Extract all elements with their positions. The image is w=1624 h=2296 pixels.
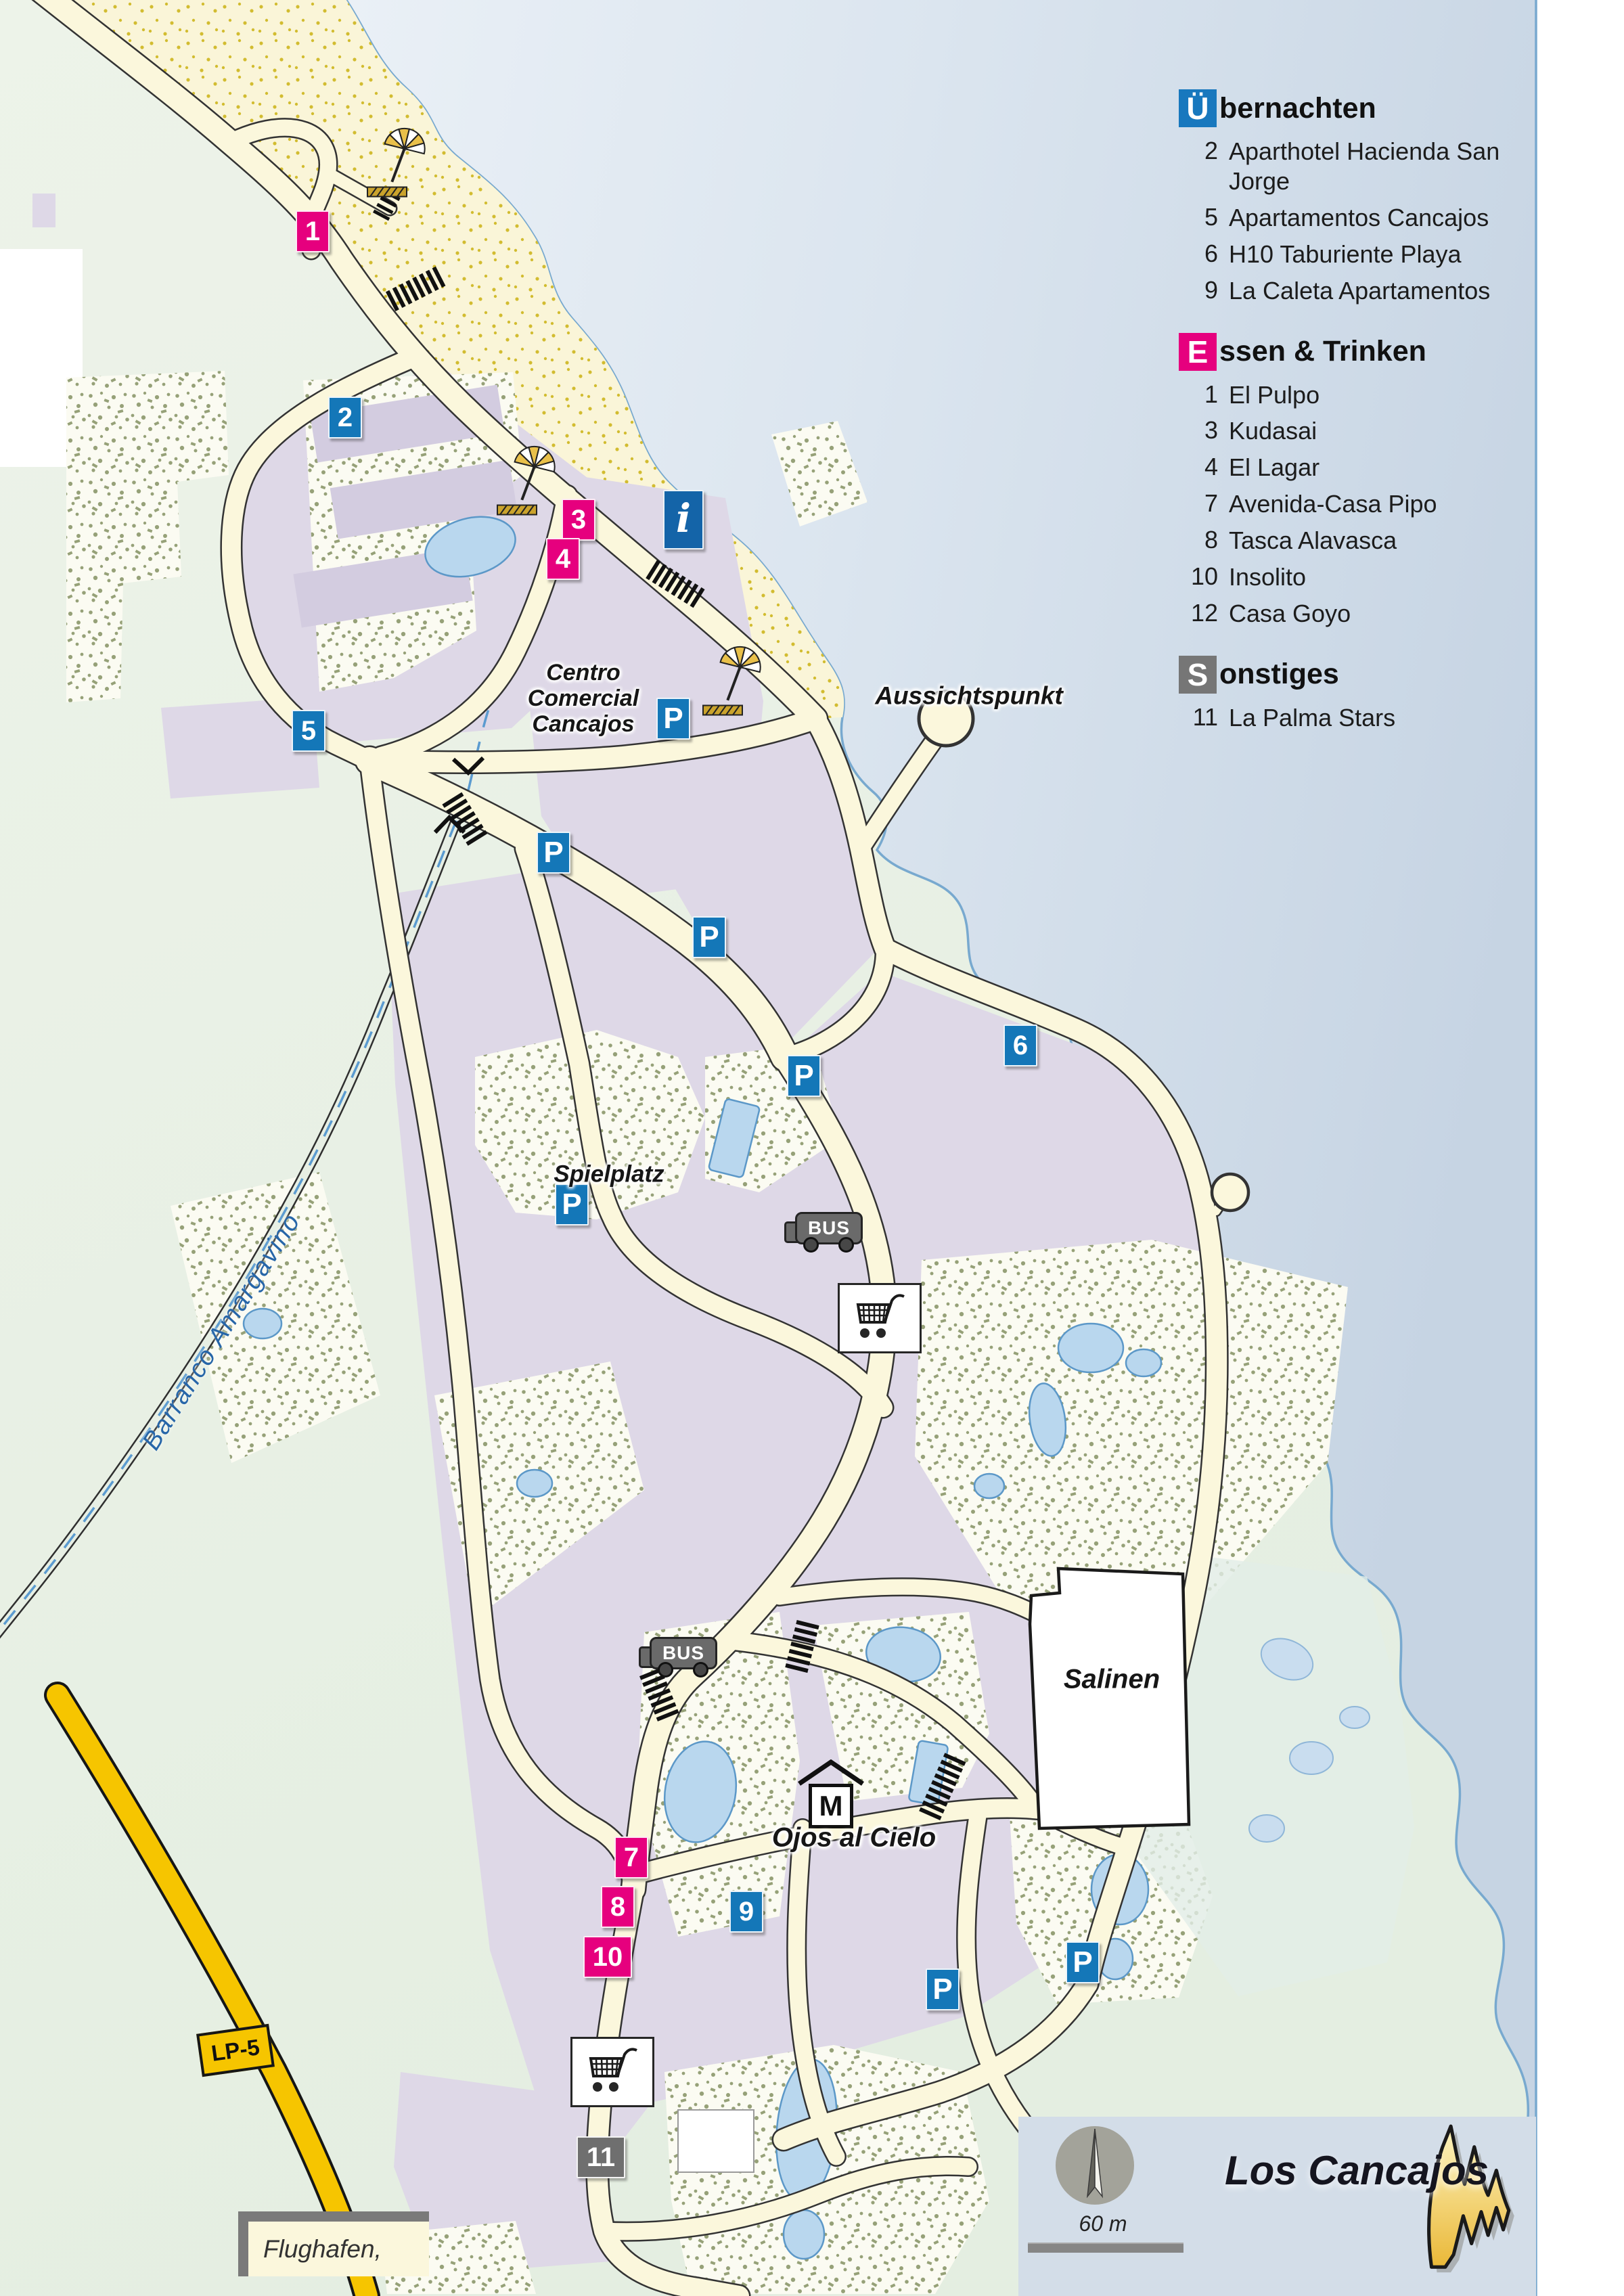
legend-item-8: 8Tasca Alavasca bbox=[1179, 526, 1544, 556]
legend-title-uebernachten: bernachten bbox=[1219, 92, 1376, 125]
legend-item-7: 7Avenida-Casa Pipo bbox=[1179, 489, 1544, 519]
legend-category-icon-uebernachten: Ü bbox=[1179, 89, 1217, 127]
legend-item-label: Apartamentos Cancajos bbox=[1229, 203, 1489, 233]
legend-item-number: 4 bbox=[1179, 453, 1218, 482]
legend-title-sonstiges: onstiges bbox=[1219, 658, 1339, 691]
map-marker-5[interactable]: 5 bbox=[292, 710, 325, 752]
label-aussichtspunkt: Aussichtspunkt bbox=[875, 681, 1063, 709]
legend-category-icon-sonstiges: S bbox=[1179, 656, 1217, 694]
legend-section-uebernachten: Übernachten2Aparthotel Hacienda San Jorg… bbox=[1179, 89, 1544, 306]
legend-item-number: 6 bbox=[1179, 240, 1218, 269]
label-spielplatz: Spielplatz bbox=[554, 1161, 664, 1187]
parking-marker-5[interactable]: P bbox=[555, 1184, 589, 1225]
legend-item-9: 9La Caleta Apartamentos bbox=[1179, 276, 1544, 306]
beach-parasol-icon-3 bbox=[691, 646, 792, 724]
museum-roof bbox=[794, 1759, 868, 1786]
bus-wheel bbox=[658, 1662, 673, 1678]
map-page: 123456789101112PPPPPPPiBUSBUSMCentroCome… bbox=[0, 0, 1624, 2296]
legend-item-number: 8 bbox=[1179, 526, 1218, 556]
legend-item-label: Avenida-Casa Pipo bbox=[1229, 489, 1437, 519]
map-marker-6[interactable]: 6 bbox=[1003, 1025, 1037, 1066]
legend-section-essen-trinken: Essen & Trinken1El Pulpo3Kudasai4El Laga… bbox=[1179, 333, 1544, 629]
legend-section-sonstiges: Sonstiges11La Palma Stars bbox=[1179, 656, 1544, 733]
legend-item-number: 3 bbox=[1179, 416, 1218, 446]
legend-item-number: 7 bbox=[1179, 489, 1218, 519]
legend-item-2: 2Aparthotel Hacienda San Jorge bbox=[1179, 137, 1544, 196]
title-panel: Los Cancajos 60 m bbox=[1018, 2117, 1536, 2296]
legend-heading-essen-trinken: Essen & Trinken bbox=[1179, 333, 1544, 371]
legend-item-6: 6H10 Taburiente Playa bbox=[1179, 240, 1544, 269]
map-marker-11[interactable]: 11 bbox=[577, 2136, 625, 2178]
map-marker-10[interactable]: 10 bbox=[583, 1936, 632, 1978]
legend-item-5: 5Apartamentos Cancajos bbox=[1179, 203, 1544, 233]
scale-text: 60 m bbox=[1059, 2211, 1147, 2236]
parking-marker-1[interactable]: P bbox=[656, 698, 690, 740]
label-salinen: Salinen bbox=[1064, 1665, 1160, 1695]
bus-stop-icon-2[interactable]: BUS bbox=[639, 1636, 715, 1678]
legend: Übernachten2Aparthotel Hacienda San Jorg… bbox=[1179, 89, 1544, 760]
label-centro-comercial-cancajos: CentroComercialCancajos bbox=[528, 660, 639, 737]
legend-item-11: 11La Palma Stars bbox=[1179, 703, 1544, 733]
bus-wheel bbox=[838, 1237, 854, 1253]
bus-wheel bbox=[693, 1662, 708, 1678]
map-marker-4[interactable]: 4 bbox=[546, 538, 580, 580]
scale-bar bbox=[1028, 2243, 1183, 2253]
supermarket-icon-2[interactable] bbox=[570, 2037, 654, 2107]
map-marker-2[interactable]: 2 bbox=[328, 397, 362, 438]
supermarket-icon-1[interactable] bbox=[838, 1283, 922, 1353]
road-badge-lp5: LP-5 bbox=[196, 2024, 275, 2077]
map-marker-9[interactable]: 9 bbox=[729, 1891, 763, 1933]
beach-parasol-icon-2 bbox=[485, 446, 587, 524]
parking-marker-6[interactable]: P bbox=[1066, 1941, 1100, 1983]
legend-item-number: 2 bbox=[1179, 137, 1218, 196]
legend-item-1: 1El Pulpo bbox=[1179, 380, 1544, 410]
legend-item-number: 5 bbox=[1179, 203, 1218, 233]
legend-item-number: 9 bbox=[1179, 276, 1218, 306]
legend-item-number: 10 bbox=[1179, 562, 1218, 592]
parking-marker-4[interactable]: P bbox=[787, 1055, 821, 1097]
panel-graphics bbox=[1018, 2117, 1536, 2296]
legend-category-icon-essen-trinken: E bbox=[1179, 333, 1217, 371]
legend-item-label: Tasca Alavasca bbox=[1229, 526, 1397, 556]
information-icon[interactable]: i bbox=[663, 490, 704, 549]
parking-marker-2[interactable]: P bbox=[537, 832, 570, 874]
legend-item-label: La Caleta Apartamentos bbox=[1229, 276, 1490, 306]
legend-heading-uebernachten: Übernachten bbox=[1179, 89, 1544, 127]
map-marker-8[interactable]: 8 bbox=[601, 1886, 635, 1928]
compass-icon bbox=[1056, 2126, 1134, 2205]
map-marker-7[interactable]: 7 bbox=[614, 1837, 648, 1878]
label-barranco-amargavino: Barranco Amargavino bbox=[137, 1208, 307, 1455]
legend-item-4: 4El Lagar bbox=[1179, 453, 1544, 482]
legend-item-3: 3Kudasai bbox=[1179, 416, 1544, 446]
legend-item-10: 10Insolito bbox=[1179, 562, 1544, 592]
beach-parasol-icon-1 bbox=[355, 128, 457, 206]
legend-item-label: El Lagar bbox=[1229, 453, 1319, 482]
bus-wheel bbox=[803, 1237, 819, 1253]
parking-marker-7[interactable]: P bbox=[926, 1968, 960, 2010]
label-ojos-al-cielo: Ojos al Cielo bbox=[772, 1823, 936, 1853]
legend-title-essen-trinken: ssen & Trinken bbox=[1219, 335, 1426, 368]
parking-marker-3[interactable]: P bbox=[692, 916, 726, 958]
legend-item-label: Kudasai bbox=[1229, 416, 1317, 446]
legend-item-label: Casa Goyo bbox=[1229, 599, 1351, 629]
legend-item-label: Insolito bbox=[1229, 562, 1306, 592]
legend-item-label: H10 Taburiente Playa bbox=[1229, 240, 1462, 269]
airport-callout: Flughafen, bbox=[238, 2211, 429, 2276]
museum-letter: M bbox=[809, 1784, 853, 1828]
legend-item-number: 12 bbox=[1179, 599, 1218, 629]
legend-item-label: La Palma Stars bbox=[1229, 703, 1395, 733]
legend-item-number: 1 bbox=[1179, 380, 1218, 410]
airport-callout-label: Flughafen, bbox=[263, 2235, 382, 2264]
map-title: Los Cancajos bbox=[1221, 2147, 1492, 2194]
shopping-cart-icon bbox=[847, 1291, 912, 1345]
map-marker-1[interactable]: 1 bbox=[296, 210, 330, 252]
legend-item-label: Aparthotel Hacienda San Jorge bbox=[1229, 137, 1520, 196]
legend-item-12: 12Casa Goyo bbox=[1179, 599, 1544, 629]
bus-stop-icon-1[interactable]: BUS bbox=[784, 1211, 860, 1253]
legend-item-label: El Pulpo bbox=[1229, 380, 1319, 410]
legend-item-number: 11 bbox=[1179, 703, 1218, 733]
shopping-cart-icon bbox=[580, 2045, 645, 2099]
legend-heading-sonstiges: Sonstiges bbox=[1179, 656, 1544, 694]
